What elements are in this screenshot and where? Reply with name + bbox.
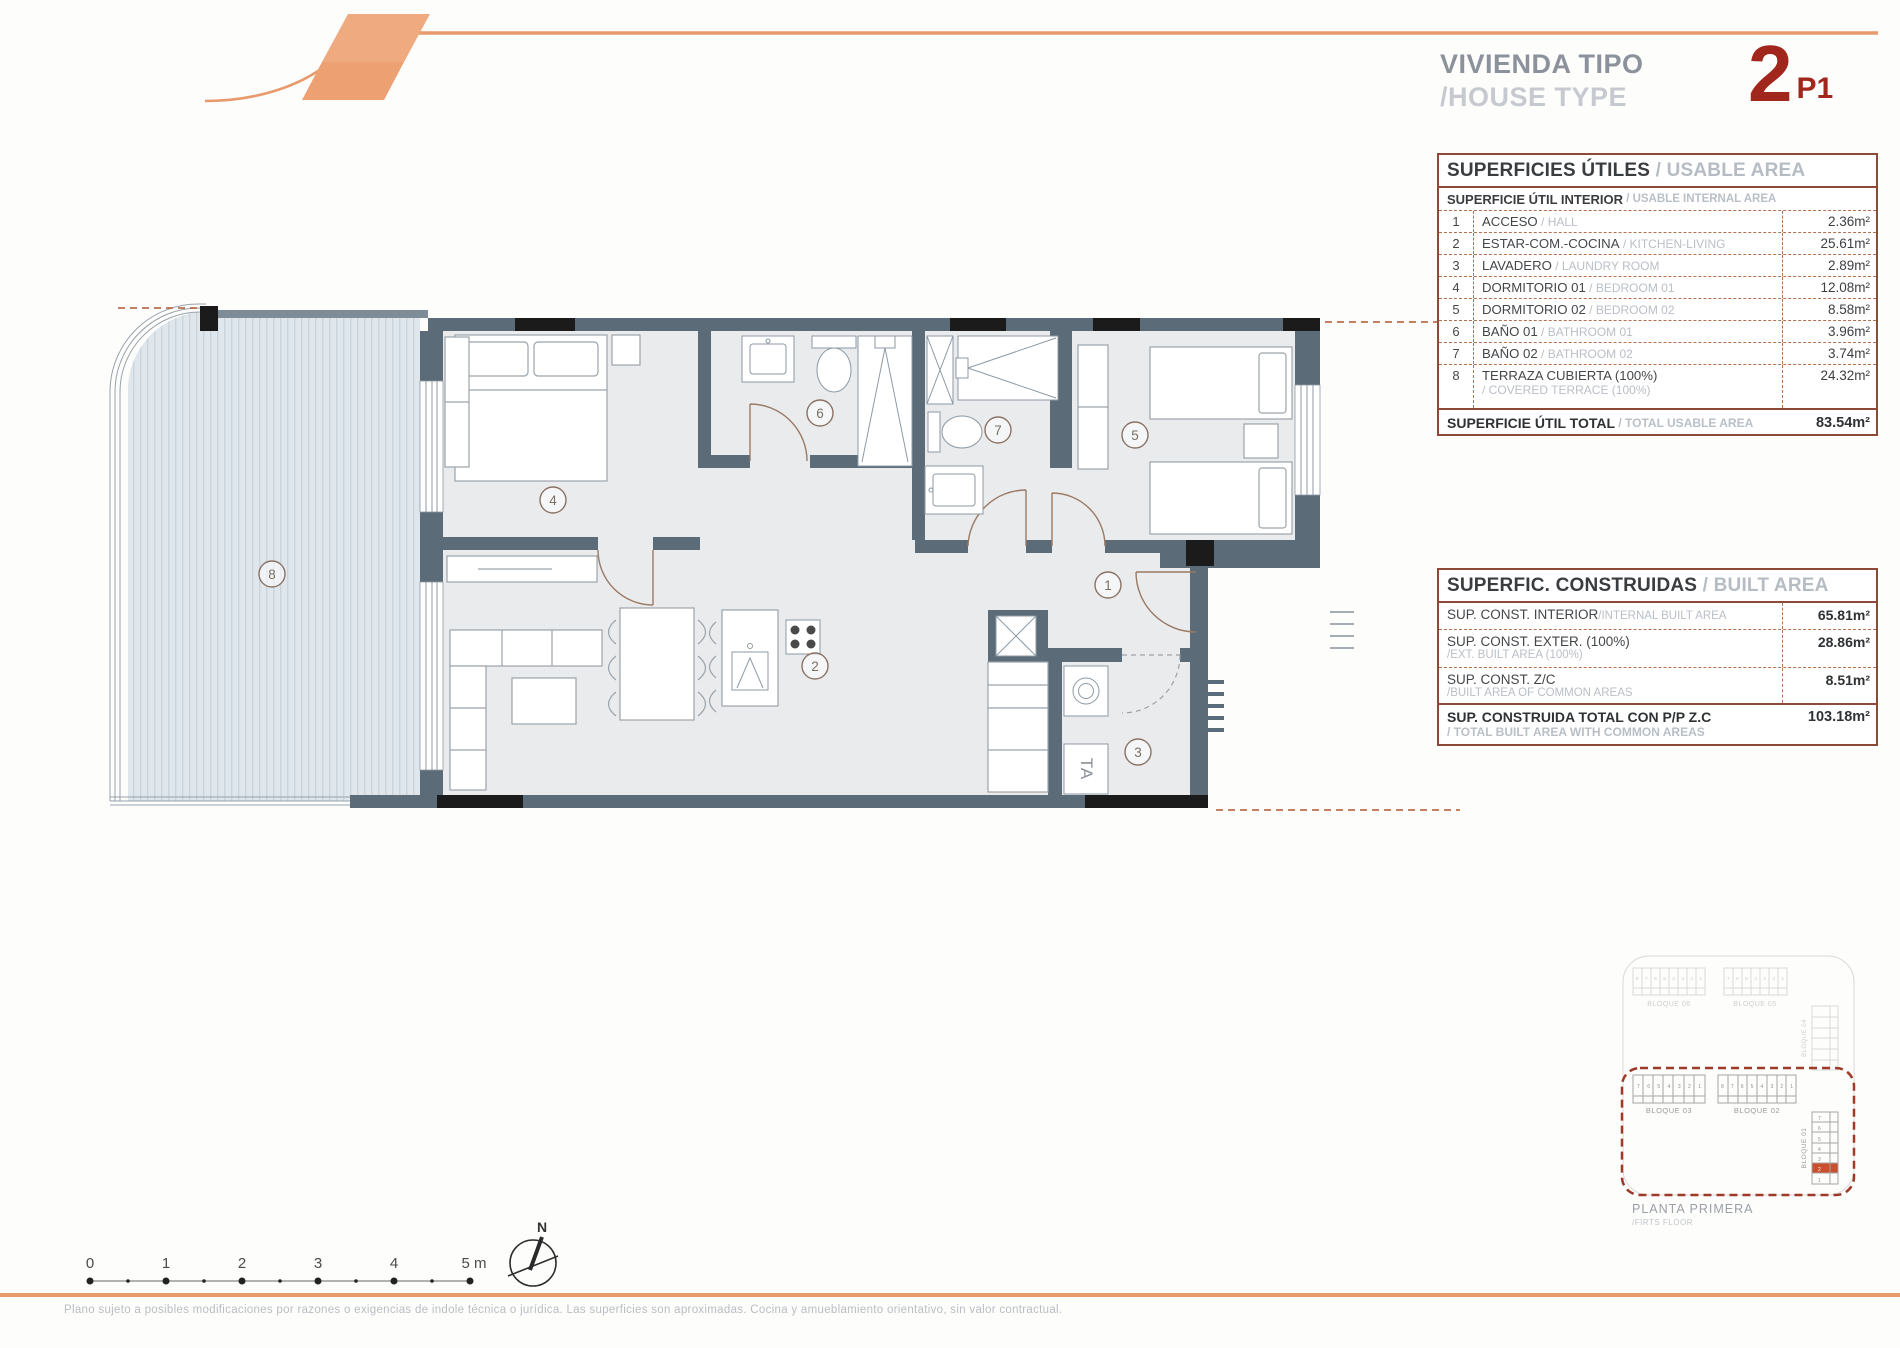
usable-total-row: SUPERFICIE ÚTIL TOTAL / TOTAL USABLE ARE…	[1439, 408, 1876, 436]
site-caption-es: PLANTA PRIMERA	[1632, 1202, 1753, 1216]
table-row: 8 TERRAZA CUBIERTA (100%)/ COVERED TERRA…	[1439, 364, 1876, 408]
row-num: 3	[1439, 258, 1473, 273]
usable-area-table: SUPERFICIES ÚTILES / USABLE AREA SUPERFI…	[1437, 153, 1878, 436]
bloque-02-units: 8 7 6 5 4 3 2 1	[1721, 1084, 1793, 1090]
scale-0: 0	[86, 1255, 94, 1272]
house-type-badge: 2 P1	[1748, 40, 1833, 108]
site-caption-en: /FIRTS FLOOR	[1632, 1218, 1693, 1227]
row-num: 6	[1439, 324, 1473, 339]
row-area: 28.86m²	[1782, 630, 1876, 667]
room-label-3: 3	[1134, 745, 1142, 760]
built-total-row: SUP. CONSTRUIDA TOTAL CON P/P Z.C / TOTA…	[1439, 703, 1876, 744]
room-label-6: 6	[816, 406, 824, 421]
plan-sheet: TA 1 2 3 4 5 6 7 8	[0, 0, 1900, 1348]
row-area: 3.96m²	[1782, 321, 1876, 342]
bloque-01-unit: 5	[1818, 1137, 1821, 1143]
bloque-01-unit: 3	[1818, 1157, 1821, 1163]
row-num: 7	[1439, 346, 1473, 361]
bloque-05-label: BLOQUE 05	[1733, 1001, 1776, 1008]
current-unit-highlight	[1812, 1163, 1838, 1173]
row-name: ESTAR-COM.-COCINA / KITCHEN-LIVING	[1473, 233, 1782, 254]
ta-label: TA	[1077, 758, 1096, 780]
built-area-table: SUPERFIC. CONSTRUIDAS / BUILT AREA SUP. …	[1437, 568, 1878, 746]
table-row: SUP. CONST. Z/C/BUILT AREA OF COMMON ARE…	[1439, 667, 1876, 703]
room-label-1: 1	[1104, 578, 1112, 593]
bloque-01-unit-current: 2	[1818, 1167, 1821, 1173]
row-area: 8.51m²	[1782, 668, 1876, 703]
room-label-4: 4	[549, 493, 557, 508]
bloque-01-label: BLOQUE 01	[1801, 1128, 1808, 1169]
row-area: 2.89m²	[1782, 255, 1876, 276]
row-name: LAVADERO / LAUNDRY ROOM	[1473, 255, 1782, 276]
table-row: 5 DORMITORIO 02 / BEDROOM 02 8.58m²	[1439, 298, 1876, 320]
page-title: VIVIENDA TIPO /HOUSE TYPE	[1440, 48, 1644, 114]
total-label-es: SUPERFICIE ÚTIL TOTAL	[1447, 415, 1615, 431]
bloque-06-label: BLOQUE 06	[1647, 1001, 1690, 1008]
row-name: DORMITORIO 02 / BEDROOM 02	[1473, 299, 1782, 320]
row-name: DORMITORIO 01 / BEDROOM 01	[1473, 277, 1782, 298]
bloque-01-unit: 4	[1818, 1147, 1821, 1153]
row-area: 8.58m²	[1782, 299, 1876, 320]
total-value: 103.18m²	[1770, 709, 1876, 744]
room-label-7: 7	[994, 423, 1002, 438]
row-name: ACCESO / HALL	[1473, 211, 1782, 232]
table-row: 7 BAÑO 02 / BATHROOM 02 3.74m²	[1439, 342, 1876, 364]
site-plan: 8 7 6 5 4 3 2 1 BLOQUE 06 7 6 5 4 3 2 1 …	[1622, 956, 1854, 1227]
scale-bar: 0 1 2 3 4 5 m	[86, 1255, 487, 1285]
row-name: BAÑO 02 / BATHROOM 02	[1473, 343, 1782, 364]
usable-title-en: / USABLE AREA	[1650, 160, 1805, 182]
north-label: N	[537, 1219, 547, 1235]
north-arrow-icon: N	[508, 1219, 558, 1286]
usable-title-es: SUPERFICIES ÚTILES	[1447, 160, 1650, 182]
row-num: 5	[1439, 302, 1473, 317]
bloque-02-label: BLOQUE 02	[1734, 1106, 1780, 1115]
total-label-en: / TOTAL USABLE AREA	[1615, 416, 1753, 430]
bloque-06: 8 7 6 5 4 3 2 1 BLOQUE 06	[1633, 968, 1705, 1008]
built-title-en: / BUILT AREA	[1697, 575, 1828, 597]
row-name: SUP. CONST. INTERIOR/INTERNAL BUILT AREA	[1439, 603, 1782, 629]
table-row: 2 ESTAR-COM.-COCINA / KITCHEN-LIVING 25.…	[1439, 232, 1876, 254]
title-es: VIVIENDA TIPO	[1440, 48, 1644, 81]
bloque-03: 7 6 5 4 3 2 1 BLOQUE 03	[1633, 1075, 1705, 1115]
scale-3: 3	[314, 1255, 322, 1272]
scale-2: 2	[238, 1255, 246, 1272]
table-row: SUP. CONST. INTERIOR/INTERNAL BUILT AREA…	[1439, 603, 1876, 629]
row-area: 12.08m²	[1782, 277, 1876, 298]
built-title-es: SUPERFIC. CONSTRUIDAS	[1447, 575, 1697, 597]
usable-subtitle-en: / USABLE INTERNAL AREA	[1623, 193, 1776, 205]
total-value: 83.54m²	[1816, 415, 1876, 431]
room-label-8: 8	[268, 567, 276, 582]
row-name: SUP. CONST. Z/C/BUILT AREA OF COMMON ARE…	[1439, 668, 1782, 703]
usable-table-header: SUPERFICIES ÚTILES / USABLE AREA	[1439, 155, 1876, 188]
bloque-01: 7 6 5 4 3 2 1 BLOQUE 01	[1801, 1112, 1838, 1184]
type-number: 2	[1748, 40, 1793, 108]
bloque-02: 8 7 6 5 4 3 2 1 BLOQUE 02	[1718, 1075, 1796, 1115]
row-area: 65.81m²	[1782, 603, 1876, 629]
table-row: 3 LAVADERO / LAUNDRY ROOM 2.89m²	[1439, 254, 1876, 276]
bloque-01-unit: 1	[1818, 1178, 1821, 1184]
row-num: 1	[1439, 214, 1473, 229]
table-row: 4 DORMITORIO 01 / BEDROOM 01 12.08m²	[1439, 276, 1876, 298]
bloque-05-units: 7 6 5 4 3 2 1	[1727, 976, 1784, 981]
disclaimer-text: Plano sujeto a posibles modificaciones p…	[64, 1304, 1062, 1316]
scale-1: 1	[162, 1255, 170, 1272]
scale-4: 4	[390, 1255, 398, 1272]
row-area: 3.74m²	[1782, 343, 1876, 364]
logo-ribbon-icon	[302, 62, 404, 100]
scale-5m: 5 m	[461, 1255, 486, 1272]
bloque-04: BLOQUE 04	[1802, 1006, 1838, 1070]
bloque-01-unit: 6	[1818, 1126, 1821, 1132]
row-name: TERRAZA CUBIERTA (100%)/ COVERED TERRACE…	[1473, 365, 1782, 408]
row-area: 24.32m²	[1782, 365, 1876, 408]
built-table-header: SUPERFIC. CONSTRUIDAS / BUILT AREA	[1439, 570, 1876, 603]
row-area: 25.61m²	[1782, 233, 1876, 254]
row-num: 4	[1439, 280, 1473, 295]
room-label-5: 5	[1131, 428, 1139, 443]
total-label: SUP. CONSTRUIDA TOTAL CON P/P Z.C / TOTA…	[1447, 709, 1770, 744]
table-row: 6 BAÑO 01 / BATHROOM 01 3.96m²	[1439, 320, 1876, 342]
bloque-01-unit: 7	[1818, 1116, 1821, 1122]
row-area: 2.36m²	[1782, 211, 1876, 232]
terrace-floor	[128, 312, 420, 801]
floor-plan: TA 1 2 3 4 5 6 7 8	[110, 304, 1460, 810]
usable-subtitle-es: SUPERFICIE ÚTIL INTERIOR	[1447, 192, 1623, 207]
bloque-06-units: 8 7 6 5 4 3 2 1	[1636, 976, 1702, 981]
bloque-03-units: 7 6 5 4 3 2 1	[1637, 1084, 1701, 1090]
row-num: 8	[1439, 365, 1473, 383]
table-row: SUP. CONST. EXTER. (100%)/EXT. BUILT ARE…	[1439, 629, 1876, 667]
logo-ribbon-icon	[322, 14, 430, 62]
table-row: 1 ACCESO / HALL 2.36m²	[1439, 210, 1876, 232]
title-en: /HOUSE TYPE	[1440, 81, 1644, 114]
type-floor: P1	[1797, 72, 1834, 106]
row-name: BAÑO 01 / BATHROOM 01	[1473, 321, 1782, 342]
bloque-05: 7 6 5 4 3 2 1 BLOQUE 05	[1724, 968, 1787, 1008]
bloque-03-label: BLOQUE 03	[1646, 1106, 1692, 1115]
room-label-2: 2	[811, 659, 819, 674]
usable-table-subheader: SUPERFICIE ÚTIL INTERIOR / USABLE INTERN…	[1439, 188, 1876, 210]
row-name: SUP. CONST. EXTER. (100%)/EXT. BUILT ARE…	[1439, 630, 1782, 667]
bloque-04-label: BLOQUE 04	[1802, 1019, 1808, 1057]
row-num: 2	[1439, 236, 1473, 251]
